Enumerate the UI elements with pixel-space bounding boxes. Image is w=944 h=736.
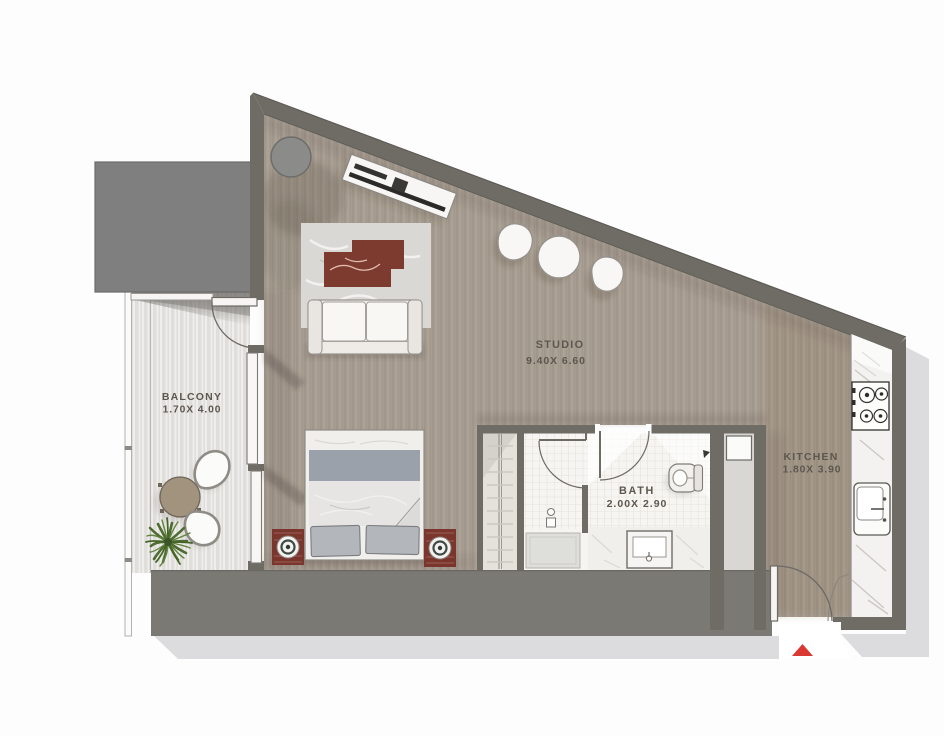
svg-text:KITCHEN: KITCHEN: [783, 451, 838, 463]
svg-text:9.40X 6.60: 9.40X 6.60: [526, 355, 586, 367]
svg-text:2.00X 2.90: 2.00X 2.90: [607, 498, 668, 510]
svg-text:1.80X 3.90: 1.80X 3.90: [783, 465, 842, 476]
svg-text:STUDIO: STUDIO: [536, 339, 585, 351]
svg-text:1.70X 4.00: 1.70X 4.00: [163, 405, 222, 416]
svg-text:BATH: BATH: [619, 485, 655, 497]
svg-text:BALCONY: BALCONY: [162, 391, 222, 403]
